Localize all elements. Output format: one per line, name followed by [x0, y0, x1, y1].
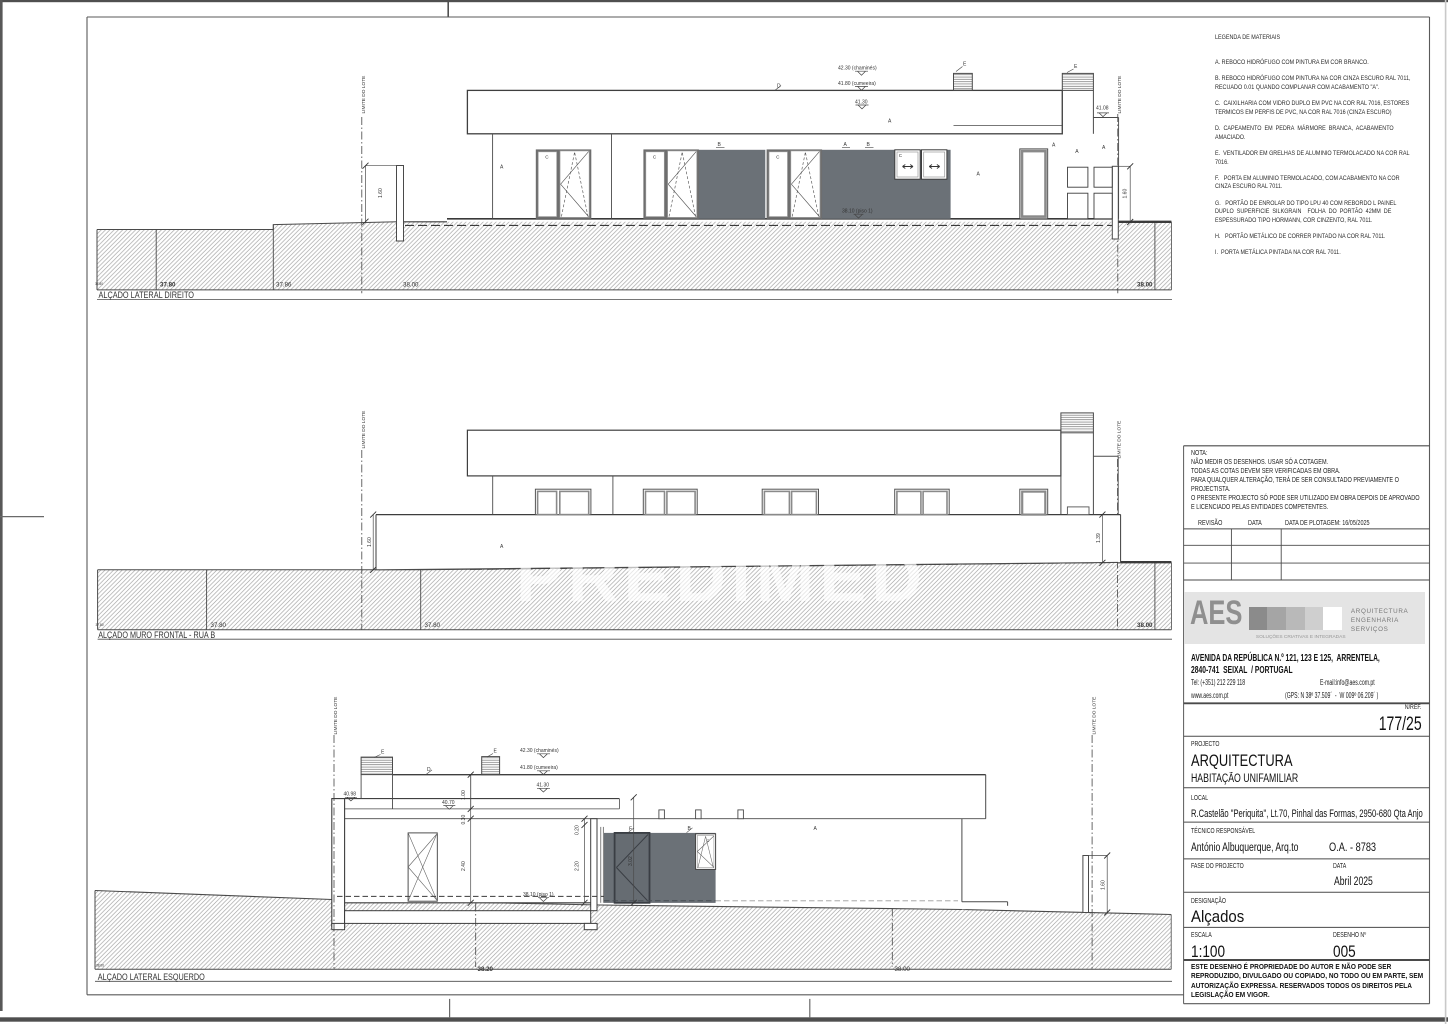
svg-text:D: D	[777, 84, 781, 90]
svg-text:1.60: 1.60	[378, 188, 384, 198]
svg-text:38.00: 38.00	[96, 964, 104, 968]
svg-text:38.00: 38.00	[403, 282, 419, 289]
svg-text:37.80: 37.80	[95, 282, 103, 286]
svg-text:37.80: 37.80	[96, 623, 104, 627]
svg-text:A: A	[1075, 149, 1079, 155]
svg-text:38.00: 38.00	[1137, 282, 1153, 289]
svg-text:37.80: 37.80	[425, 622, 441, 629]
svg-text:1.60: 1.60	[367, 537, 373, 547]
svg-text:LIMITE DO LOTE: LIMITE DO LOTE	[1117, 421, 1123, 459]
svg-text:37.86: 37.86	[276, 282, 292, 289]
svg-text:C: C	[707, 838, 710, 843]
svg-text:E: E	[963, 62, 967, 68]
svg-text:E: E	[494, 749, 498, 755]
svg-text:1.60: 1.60	[1101, 880, 1107, 890]
svg-text:37.80: 37.80	[211, 622, 227, 629]
svg-text:ALÇADO MURO FRONTAL - RUA B: ALÇADO MURO FRONTAL - RUA B	[98, 630, 215, 640]
svg-text:41.08: 41.08	[1096, 106, 1109, 112]
svg-text:1.39: 1.39	[1096, 533, 1102, 543]
svg-text:A: A	[500, 164, 504, 170]
svg-text:38.10 (piso 1): 38.10 (piso 1)	[523, 892, 554, 898]
svg-text:LIMITE DO LOTE: LIMITE DO LOTE	[361, 76, 367, 114]
svg-text:38.20: 38.20	[478, 966, 494, 973]
svg-text:B: B	[867, 142, 871, 148]
svg-text:38.00: 38.00	[1137, 622, 1153, 629]
svg-text:E: E	[1074, 64, 1078, 70]
svg-text:0.30: 0.30	[461, 815, 467, 825]
svg-text:ALÇADO LATERAL DIREITO: ALÇADO LATERAL DIREITO	[99, 290, 195, 300]
svg-text:1.00: 1.00	[461, 790, 467, 800]
svg-text:LIMITE DO LOTE: LIMITE DO LOTE	[1091, 697, 1097, 735]
svg-text:A: A	[977, 172, 981, 178]
svg-text:2.20: 2.20	[575, 861, 581, 871]
svg-text:41.30: 41.30	[855, 99, 868, 105]
svg-text:LIMITE DO LOTE: LIMITE DO LOTE	[361, 411, 367, 449]
svg-text:LIMITE DO LOTE: LIMITE DO LOTE	[333, 697, 339, 735]
svg-text:ALÇADO LATERAL ESQUERDO: ALÇADO LATERAL ESQUERDO	[98, 972, 205, 982]
svg-text:40.70: 40.70	[442, 800, 455, 806]
svg-text:A: A	[844, 142, 848, 148]
svg-text:41.80 (cumeeira): 41.80 (cumeeira)	[838, 81, 876, 87]
svg-text:1.60: 1.60	[1122, 189, 1128, 199]
svg-text:0.20: 0.20	[575, 825, 581, 835]
svg-text:38.10 (piso 1): 38.10 (piso 1)	[842, 209, 873, 215]
svg-text:3.02: 3.02	[628, 856, 634, 866]
svg-text:LIMITE DO LOTE: LIMITE DO LOTE	[1117, 76, 1123, 114]
svg-text:42.30 (chaminés): 42.30 (chaminés)	[838, 66, 877, 72]
svg-text:2.40: 2.40	[461, 861, 467, 871]
svg-text:42.30 (chaminés): 42.30 (chaminés)	[520, 748, 559, 754]
svg-text:38.00: 38.00	[895, 966, 911, 973]
svg-text:A: A	[1102, 145, 1106, 151]
svg-text:B: B	[718, 142, 722, 148]
svg-text:A: A	[1052, 143, 1056, 149]
svg-text:40.98: 40.98	[344, 792, 357, 798]
svg-text:41.30: 41.30	[537, 783, 550, 789]
svg-text:37.80: 37.80	[160, 282, 176, 289]
svg-text:E: E	[381, 750, 385, 756]
svg-text:41.80 (cumeeira): 41.80 (cumeeira)	[520, 765, 558, 771]
